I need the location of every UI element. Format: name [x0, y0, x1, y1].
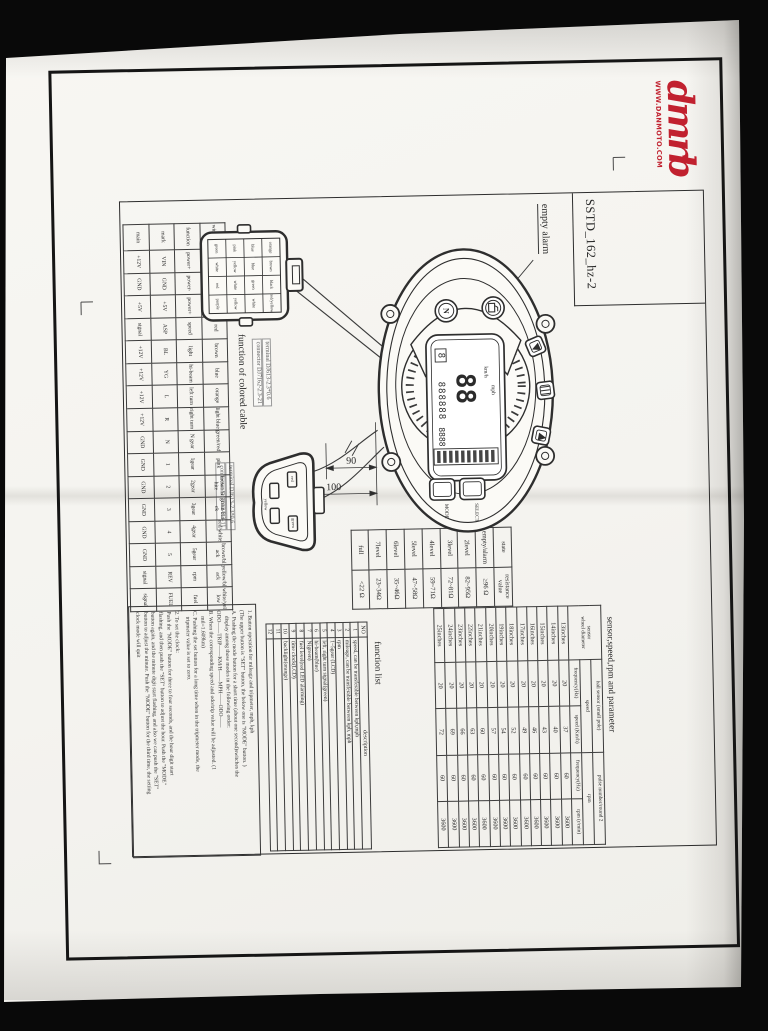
table-row: 7level23~34Ω: [369, 530, 388, 609]
sensor-speed-rpm-table: sensor wheel diameter hall sensor (small…: [433, 605, 606, 848]
notes-paragraph-1: 1. Button operation for mileage and trip…: [182, 610, 257, 851]
function-list-title: function list: [373, 641, 384, 684]
state-header: state: [493, 527, 512, 567]
table-row: 6level35~46Ω: [386, 529, 405, 608]
rpm-frequency-header: frequency(Hz): [571, 752, 583, 798]
speed-kmh-header: speed (Km/h): [570, 706, 582, 752]
resistance-header: resistance value: [494, 567, 513, 607]
table-row: full<22 Ω: [351, 530, 370, 609]
sensor-wheel-header: sensor wheel diameter: [568, 605, 602, 660]
table-row: 4level59~71Ω: [422, 529, 441, 608]
wiring-table: wire colorblackgreenyellowredbrownblueor…: [123, 222, 233, 612]
empty-alarm-label: empty alarm: [537, 204, 551, 255]
no-header: NO: [358, 622, 367, 637]
brand-logo-text: dmrb: [665, 80, 696, 177]
function-list-table: NO description 1speed, can be transferab…: [265, 621, 372, 851]
pulse-header: pulse number/round 2: [593, 752, 606, 845]
terminal-part-number: terminal DJ613-2.3*0.6: [261, 338, 272, 406]
hall-sensor-header: hall sensor (small pole): [591, 659, 604, 752]
connector-part-number: connector DJ7162-2.3-21: [252, 339, 263, 407]
rpm-rmin-header: rpm (r/min): [572, 798, 584, 844]
operation-notes: 1. Button operation for mileage and trip…: [128, 604, 261, 859]
document-code: SSTD_162_hz-2: [582, 199, 599, 290]
table-row: 5level47~58Ω: [404, 529, 423, 608]
connector1-part-note: terminal DJ613-2.3*0.6 connector DJ7162-…: [252, 338, 272, 407]
notes-paragraph-2: 2. To set the clock:Push the "MODE" butt…: [132, 611, 184, 852]
table-row: empty/alarm≥96 Ω: [475, 527, 494, 606]
rpm-group-header: rpm: [582, 752, 595, 845]
speed-group-header: speed: [580, 660, 593, 753]
cable-function-label: function of colored cable: [236, 334, 248, 429]
technical-sheet: SSTD_162_hz-2 empty alarm function of co…: [119, 190, 717, 858]
document-tilt-group: dmrb WWW.DANMOTO.COM SSTD_162_hz-2 empty…: [0, 0, 768, 1031]
sensor-table-title: sensor,speed,rpm and parameter: [605, 617, 617, 733]
resistance-table: state resistance value empty/alarm≥96 Ω2…: [350, 527, 513, 610]
title-block: SSTD_162_hz-2: [572, 191, 705, 307]
table-row: 2level82~95Ω: [457, 528, 476, 607]
table-header-row: state resistance value: [493, 527, 513, 606]
table-row: 3level72~81Ω: [440, 528, 459, 607]
speed-frequency-header: frequency(Hz): [569, 660, 581, 706]
danmoto-logo: dmrb WWW.DANMOTO.COM: [634, 80, 696, 177]
